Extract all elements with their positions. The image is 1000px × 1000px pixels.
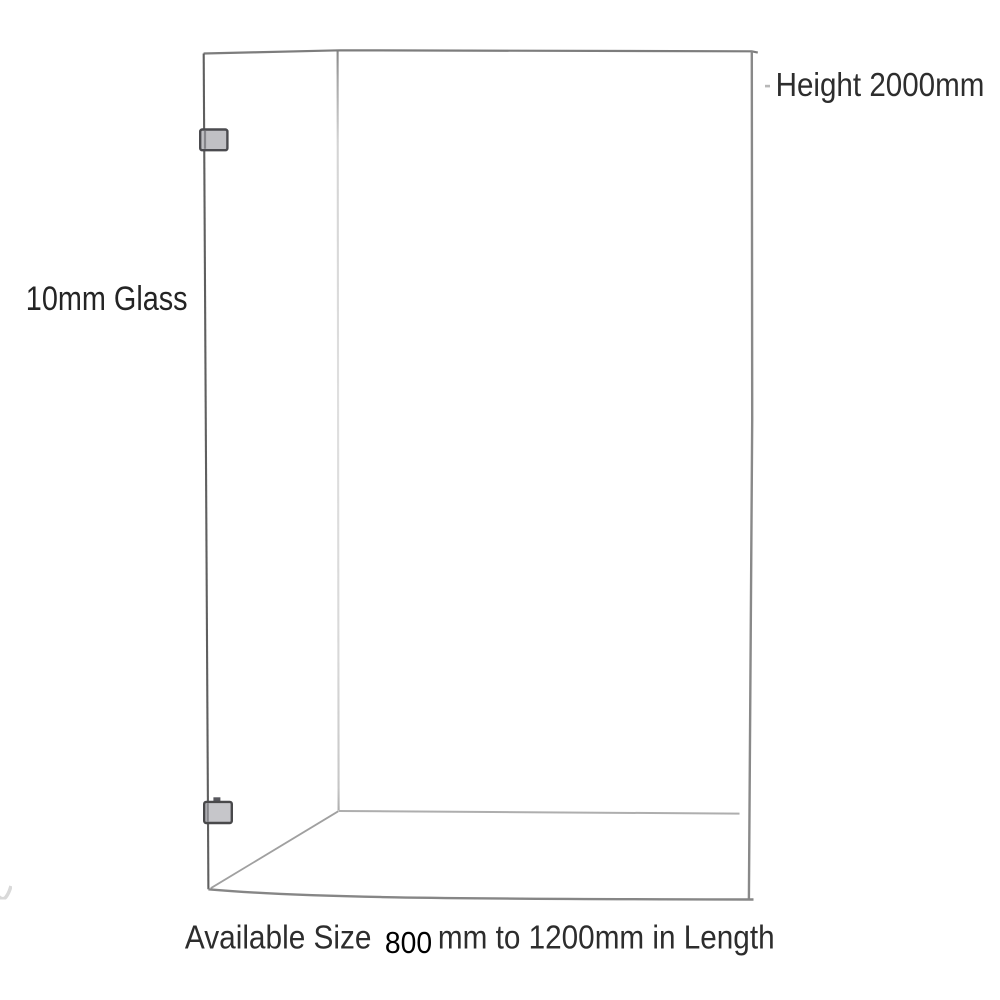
- svg-text:Available Size: Available Size: [185, 920, 372, 957]
- svg-text:Height 2000mm: Height 2000mm: [776, 67, 985, 104]
- svg-text:10mm Glass: 10mm Glass: [26, 280, 188, 318]
- svg-text:800: 800: [385, 925, 432, 960]
- svg-text:mm to 1200mm in Length: mm to 1200mm in Length: [438, 920, 775, 957]
